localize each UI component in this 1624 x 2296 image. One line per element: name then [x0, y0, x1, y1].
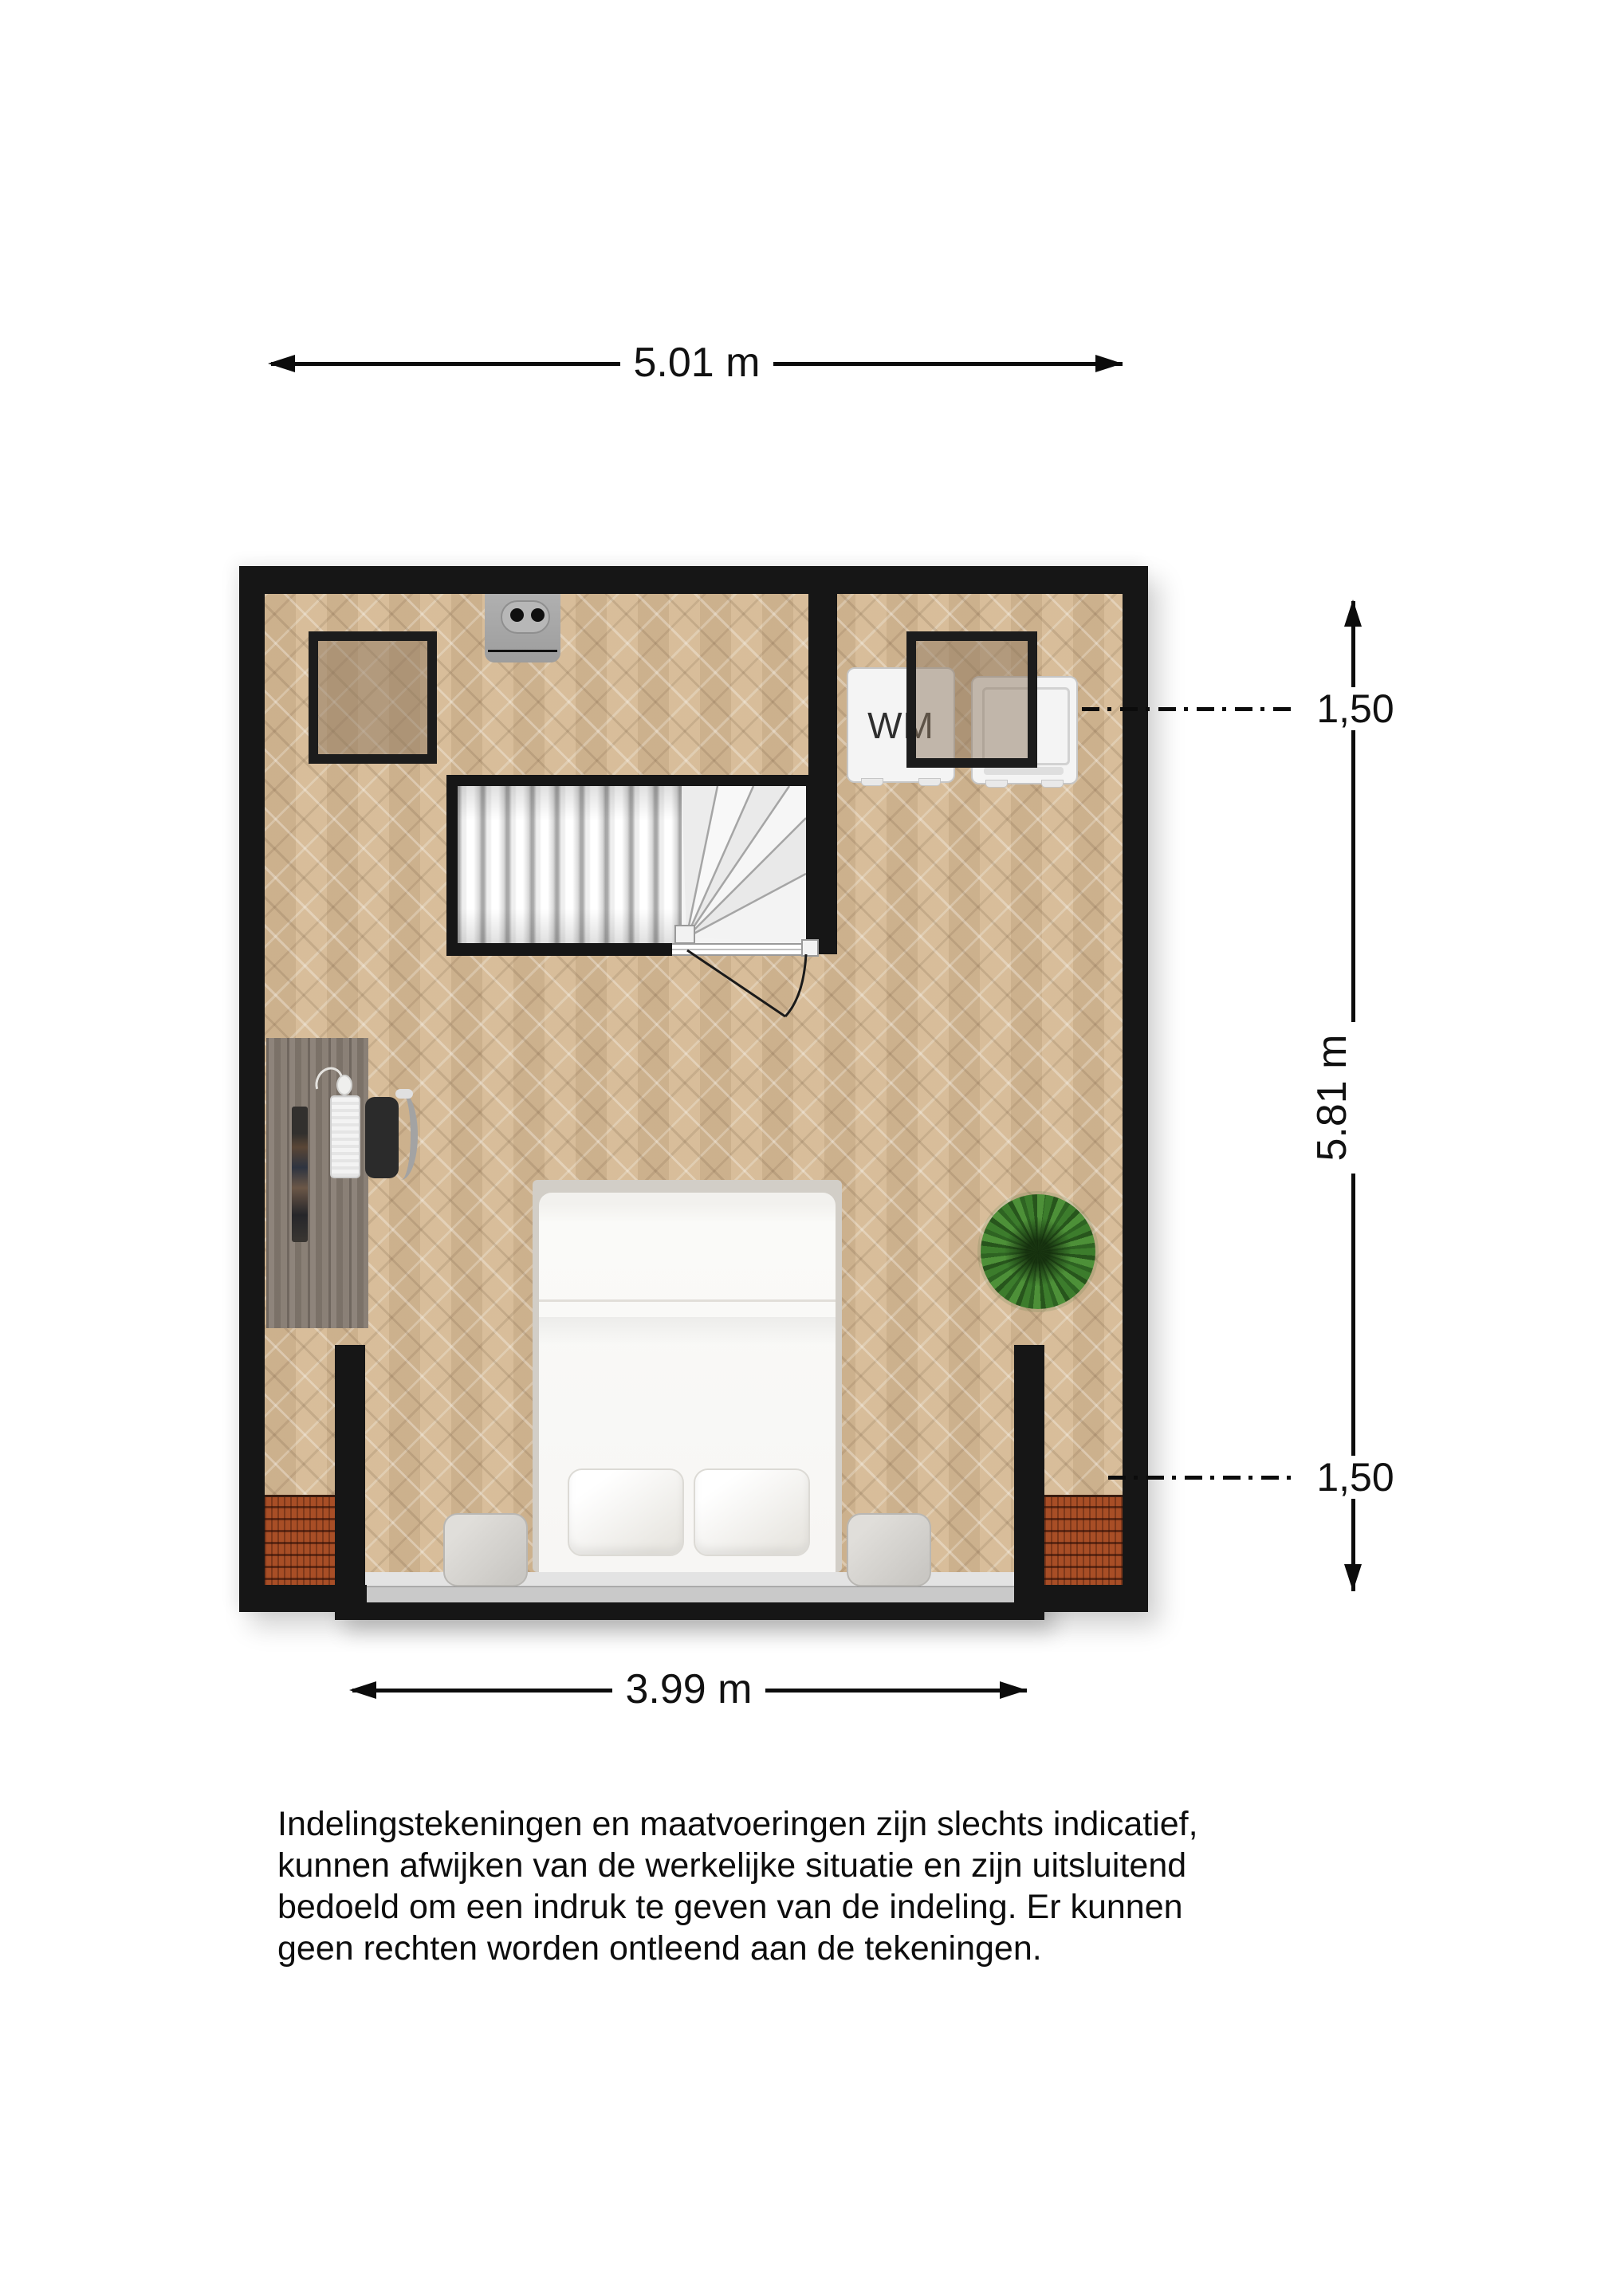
headroom-label-upper: 1,50 [1306, 687, 1405, 730]
sink-drain-dot [531, 608, 545, 622]
roof-window-icon [906, 631, 1037, 768]
office-chair-icon [395, 1089, 413, 1099]
nightstand-icon [443, 1513, 528, 1586]
dimension-height-right: 5.81 m [1308, 1035, 1356, 1162]
roof-tiles-icon [265, 1495, 335, 1592]
keyboard-icon [330, 1095, 360, 1178]
arrow-up-icon [1344, 600, 1362, 627]
sink-edge-line [488, 650, 557, 652]
headroom-dashline-lower [1108, 1476, 1296, 1480]
wall-top [239, 566, 1148, 594]
appliance-foot [918, 778, 941, 786]
dryer-slot [984, 767, 1064, 775]
bed-seam [539, 1299, 836, 1302]
mouse-icon [336, 1075, 352, 1095]
pillow-icon [694, 1468, 810, 1556]
disclaimer-line: Indelingstekeningen en maatvoeringen zij… [277, 1803, 1314, 1845]
office-chair-icon [365, 1097, 399, 1178]
door-swing-icon [670, 941, 829, 1048]
sink-icon [485, 594, 560, 662]
dormer-wall [1014, 1345, 1044, 1620]
bed-icon [533, 1180, 842, 1572]
appliance-foot [1041, 780, 1064, 788]
wall-right [1123, 566, 1148, 1612]
disclaimer-line: kunnen afwijken van de werkelijke situat… [277, 1845, 1314, 1886]
staircase-straight-treads [458, 786, 682, 943]
headroom-label-lower: 1,50 [1306, 1456, 1405, 1499]
disclaimer-line: bedoeld om een indruk te geven van de in… [277, 1886, 1314, 1928]
bed-seam [539, 1317, 836, 1346]
pillow-icon [568, 1468, 684, 1556]
dormer-wall [335, 1345, 365, 1620]
arrow-down-icon [1344, 1564, 1362, 1591]
appliance-foot [985, 780, 1008, 788]
wall-left [239, 566, 265, 1612]
sink-drain-dot [510, 608, 524, 622]
dimension-height-right-wrap: 5.81 m [1307, 1022, 1357, 1174]
disclaimer-text: Indelingstekeningen en maatvoeringen zij… [277, 1803, 1314, 1969]
roof-tiles-icon [1044, 1495, 1123, 1592]
arrow-left-icon [268, 355, 295, 372]
appliance-foot [861, 778, 883, 786]
stair-enclosure-wall [446, 943, 672, 956]
wall-partition [808, 594, 837, 954]
arrow-right-icon [1095, 355, 1123, 372]
staircase-winder-treads [682, 786, 806, 943]
nightstand-icon [847, 1513, 931, 1586]
disclaimer-line: geen rechten worden ontleend aan de teke… [277, 1928, 1314, 1969]
arrow-left-icon [349, 1681, 376, 1699]
headroom-dashline-upper [1082, 707, 1296, 711]
monitor-icon [292, 1107, 308, 1242]
dormer-wall [335, 1602, 1044, 1620]
floorplan-canvas: WM 5.01 m 5.81 m 1,50 1,50 3.99 m Indeli… [0, 0, 1624, 2296]
dimension-width-top: 5.01 m [620, 341, 773, 384]
plant-icon [981, 1194, 1095, 1309]
arrow-right-icon [1000, 1681, 1027, 1699]
dimension-width-bottom: 3.99 m [612, 1668, 765, 1711]
roof-window-icon [309, 631, 437, 764]
